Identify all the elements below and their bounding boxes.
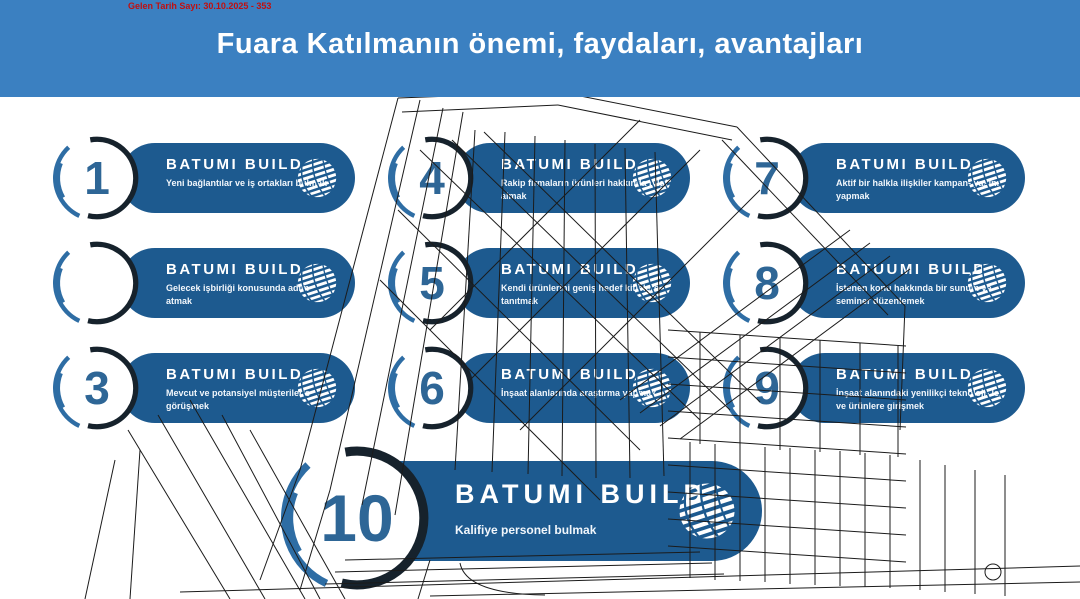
item-number: 3 [53,344,141,432]
benefit-item-4: BATUMI BUILD Rakip firmaların ürünleri h… [455,143,690,213]
item-number-badge: 9 [723,344,811,432]
item-number-badge: 5 [388,239,476,327]
item-number: 5 [388,239,476,327]
benefit-item-9: BATUMI BUILD İnşaat alanındaki yenilikçi… [790,353,1025,423]
slide: Gelen Tarih Sayı: 30.10.2025 - 353 Fuara… [0,0,1080,599]
item-number: 6 [388,344,476,432]
benefit-item-6: BATUMI BUILD İnşaat alanlarında araştırm… [455,353,690,423]
globe-icon [629,155,675,201]
item-number: 9 [723,344,811,432]
item-number: 10 [281,442,433,594]
item-number: 4 [388,134,476,222]
item-number: 7 [723,134,811,222]
page-title: Fuara Katılmanın önemi, faydaları, avant… [0,28,1080,61]
globe-icon [294,365,340,411]
item-number-badge: 6 [388,344,476,432]
benefit-item-8: BATUUMI BUILD İstenen konu hakkında bir … [790,248,1025,318]
globe-icon [294,260,340,306]
item-number-badge: 10 [281,442,433,594]
title-banner: Gelen Tarih Sayı: 30.10.2025 - 353 Fuara… [0,0,1080,97]
item-number-badge [53,239,141,327]
item-number-badge: 8 [723,239,811,327]
item-number-badge: 1 [53,134,141,222]
date-stamp-note: Gelen Tarih Sayı: 30.10.2025 - 353 [128,1,271,11]
item-number: 1 [53,134,141,222]
item-number: 8 [723,239,811,327]
benefit-item-7: BATUMI BUILD Aktif bir halkla ilişkiler … [790,143,1025,213]
item-number-badge: 4 [388,134,476,222]
benefit-item-1: BATUMI BUILD Yeni bağlantılar ve iş orta… [120,143,355,213]
item-number [53,239,141,327]
globe-icon [629,365,675,411]
globe-icon [629,260,675,306]
globe-icon [294,155,340,201]
globe-icon [964,365,1010,411]
item-number-badge: 7 [723,134,811,222]
benefit-item-5: BATUMI BUILD Kendi ürünlerini geniş hede… [455,248,690,318]
benefit-item-3: BATUMI BUILD Mevcut ve potansiyel müşter… [120,353,355,423]
benefit-item-2: BATUMI BUILD Gelecek işbirliği konusunda… [120,248,355,318]
globe-icon [964,155,1010,201]
globe-icon [964,260,1010,306]
item-description: Kalifiye personel bulmak [455,522,685,539]
globe-icon [674,478,740,544]
item-number-badge: 3 [53,344,141,432]
